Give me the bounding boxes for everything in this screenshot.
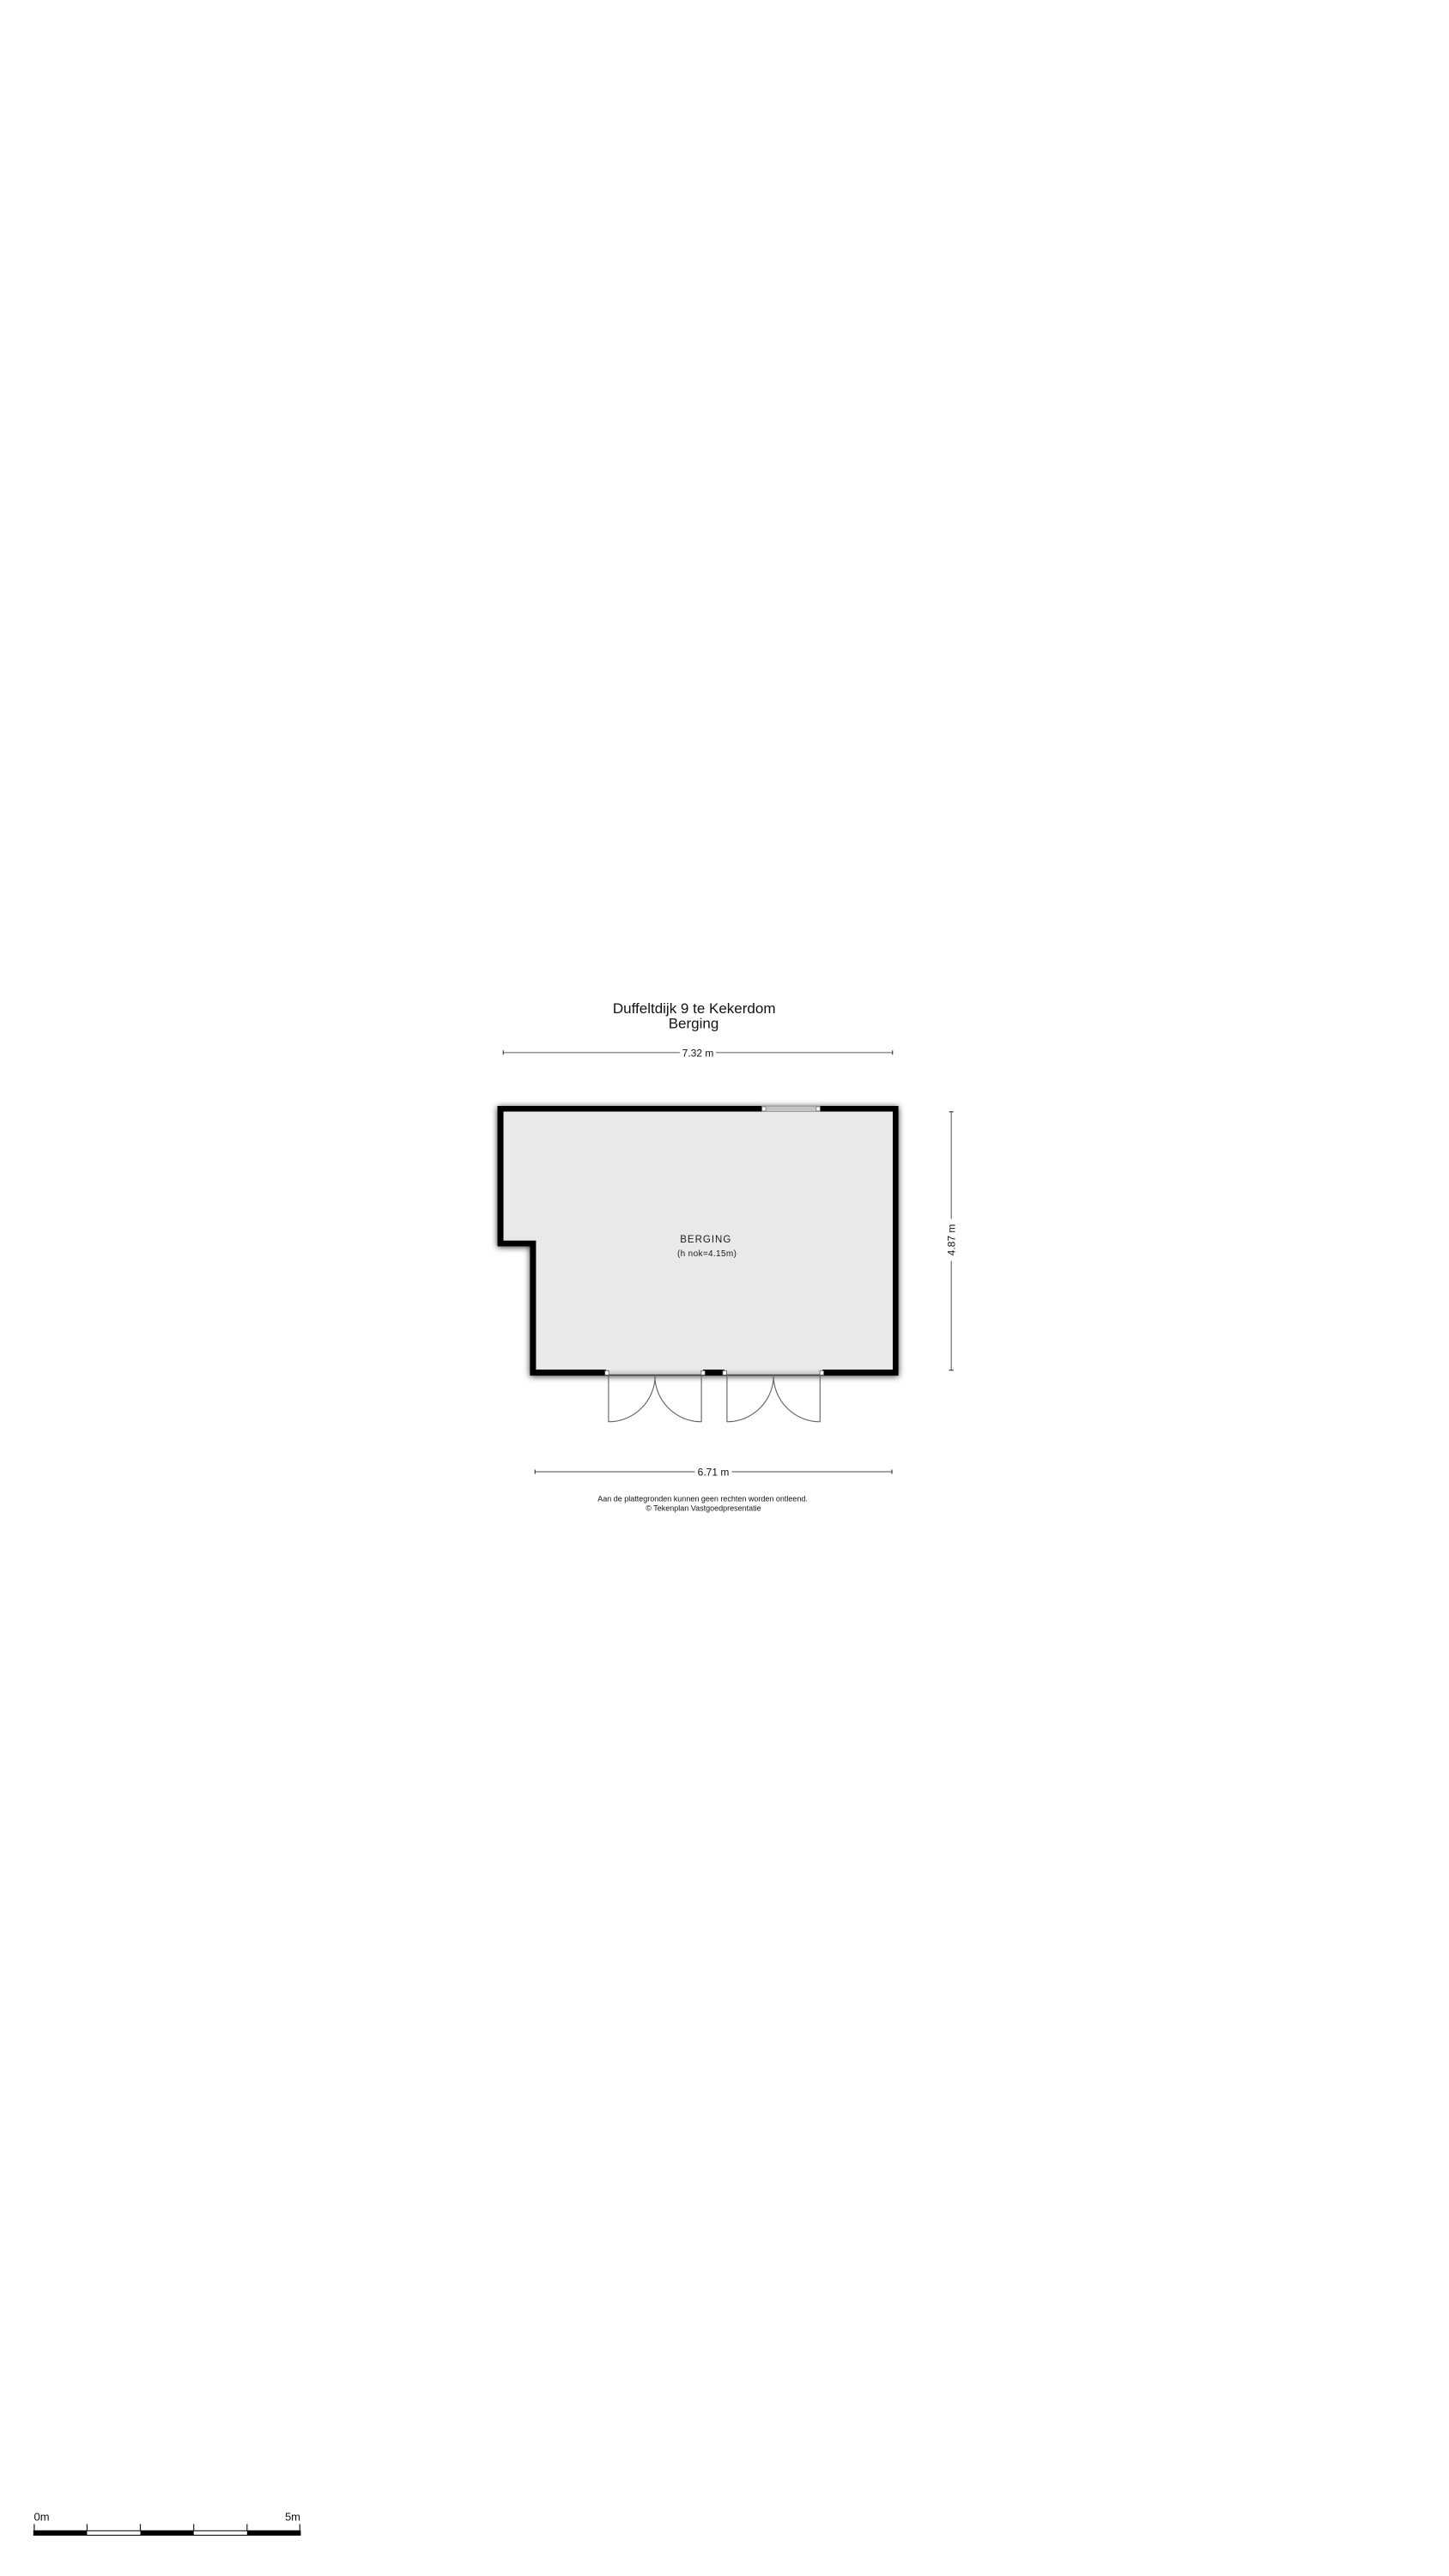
svg-text:(h nok=4.15m): (h nok=4.15m) [677, 1249, 737, 1259]
svg-text:4.87 m: 4.87 m [946, 1224, 958, 1256]
svg-text:© Tekenplan Vastgoedpresentati: © Tekenplan Vastgoedpresentatie [646, 1504, 761, 1513]
svg-text:6.71 m: 6.71 m [698, 1467, 730, 1479]
svg-text:5m: 5m [285, 2511, 300, 2524]
svg-text:BERGING: BERGING [680, 1235, 731, 1245]
svg-text:Aan de plattegronden kunnen ge: Aan de plattegronden kunnen geen rechten… [597, 1495, 808, 1504]
svg-text:0m: 0m [34, 2511, 50, 2524]
svg-text:Duffeltdijk 9 te Kekerdom: Duffeltdijk 9 te Kekerdom [613, 1000, 776, 1017]
svg-text:7.32 m: 7.32 m [682, 1047, 714, 1059]
svg-text:Berging: Berging [669, 1016, 719, 1032]
